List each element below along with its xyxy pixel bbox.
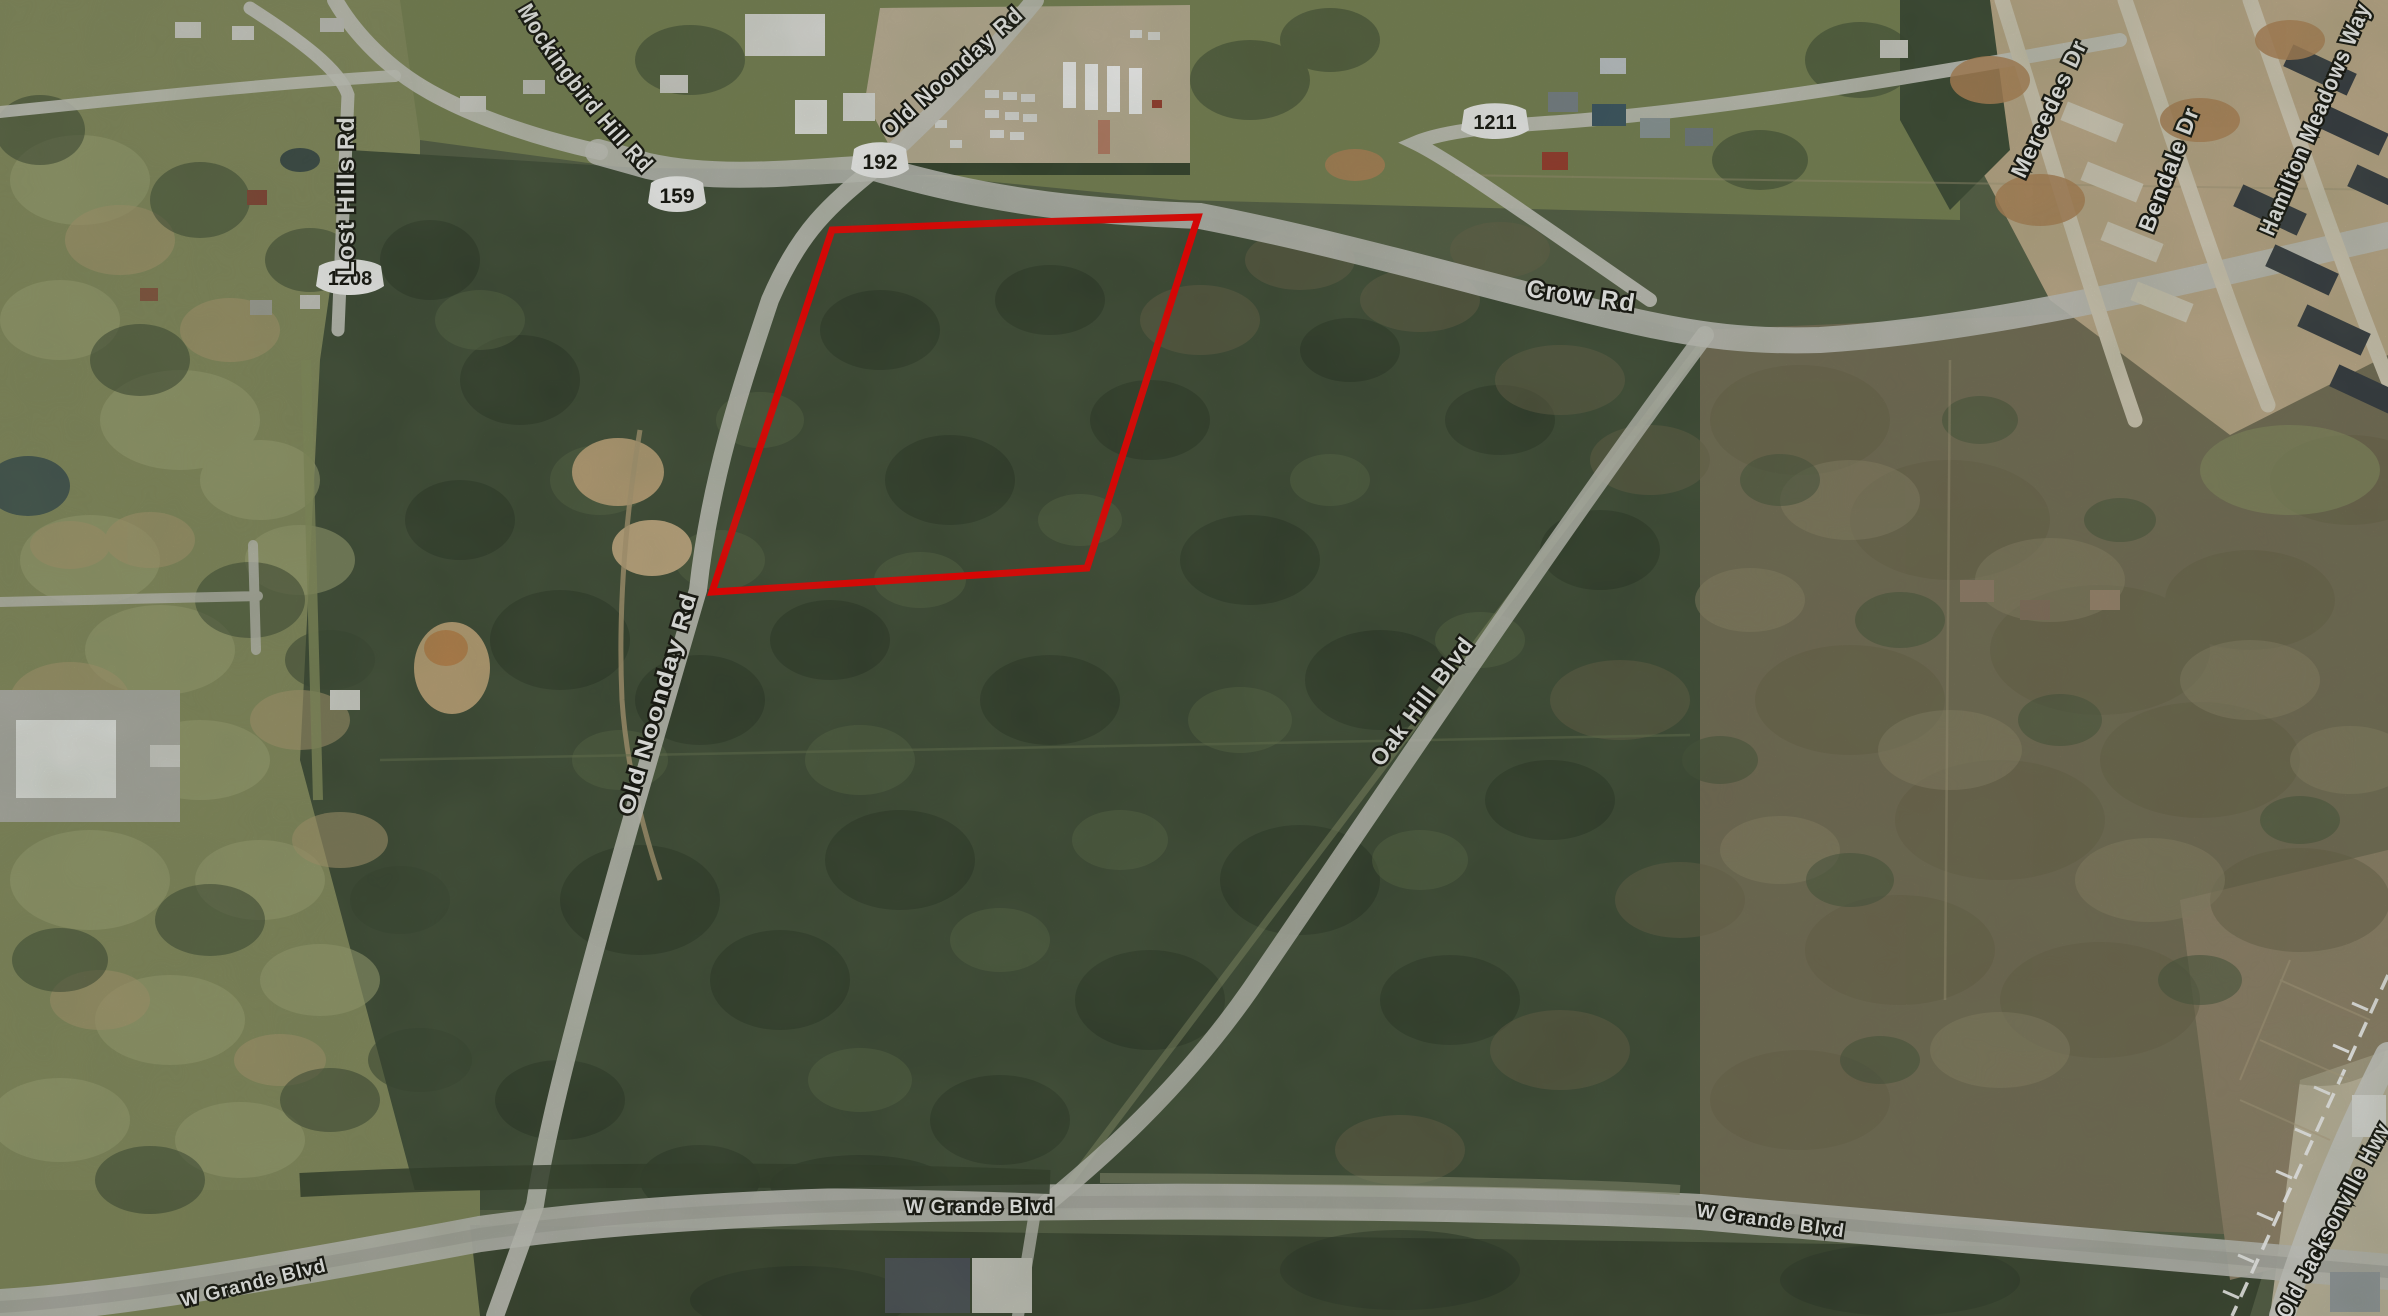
texture-grain-overlay [0, 0, 2388, 1316]
map-viewport[interactable]: 159 192 1208 1211 Mockingbird Hill Rd Ol… [0, 0, 2388, 1316]
aerial-map[interactable]: 159 192 1208 1211 Mockingbird Hill Rd Ol… [0, 0, 2388, 1316]
